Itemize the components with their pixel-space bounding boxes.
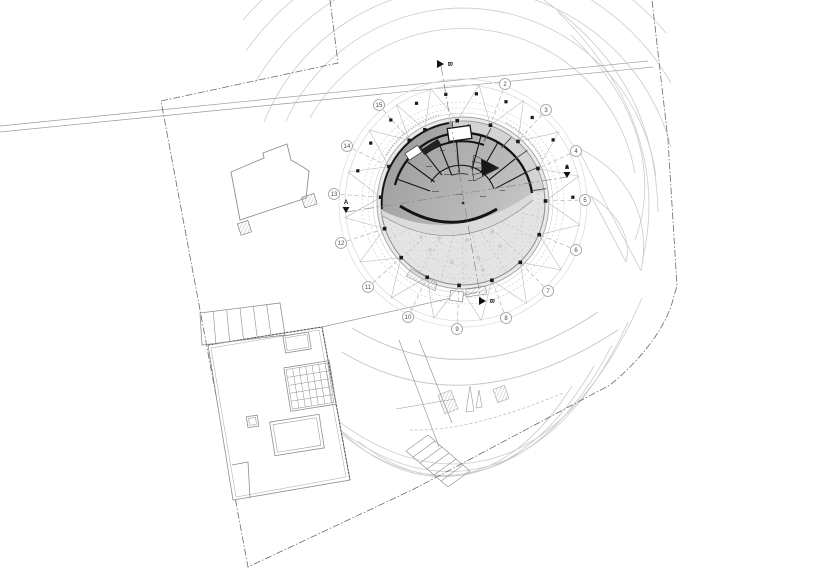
outer-column-square [415, 102, 418, 105]
grid-bubble-number: 13 [331, 192, 338, 198]
column-square [536, 167, 540, 171]
driveway-curve [352, 312, 598, 359]
column-square [537, 233, 541, 237]
column-square [379, 195, 383, 199]
column-square [489, 123, 493, 127]
column-square [423, 128, 427, 132]
driveway-curve [342, 330, 618, 385]
contour-sweep [338, 366, 594, 477]
column-square [490, 278, 494, 282]
flat-roof-outline [208, 327, 350, 500]
center-point [462, 202, 465, 205]
road-lines [0, 61, 653, 132]
grid-bubble: 14 [342, 141, 353, 152]
section-arrow-icon [437, 60, 444, 68]
grid-leader-line [541, 235, 570, 247]
column-square [519, 261, 523, 265]
grid-bubble: 11 [363, 282, 374, 293]
outer-column-square [389, 118, 392, 121]
contour-arc [544, 0, 658, 212]
grid-bubble-number: 10 [405, 315, 412, 321]
neighbor-house-outline [231, 144, 309, 220]
tree-symbol [476, 390, 482, 408]
outer-column-square [369, 141, 372, 144]
contour-sweep [305, 322, 628, 471]
road-edge [0, 67, 653, 132]
grid-bubble: 9 [452, 324, 463, 335]
column-square [457, 284, 461, 288]
grid-bubble: 12 [336, 238, 347, 249]
column-square [383, 227, 387, 231]
section-marker-a: A [564, 165, 571, 178]
section-marker-b: B [437, 60, 452, 68]
section-marker-label: B [446, 62, 452, 67]
rooftop-box [447, 125, 472, 141]
section-arrow-icon [343, 207, 350, 213]
column-square [408, 139, 412, 143]
grid-bubble: 2 [500, 79, 511, 90]
grid-bubble: 13 [329, 189, 340, 200]
section-marker-a: A [343, 200, 350, 213]
grid-bubble: 6 [571, 245, 582, 256]
contour-arc [243, 0, 645, 20]
grid-leader-line [492, 282, 503, 312]
contour-leaf [578, 148, 641, 271]
column-square [455, 119, 459, 123]
grid-leader-line [547, 200, 579, 201]
grid-leader-line [519, 115, 542, 140]
grid-bubble-number: 11 [365, 285, 372, 291]
road-edge [0, 61, 648, 126]
path-dashed-curve [410, 393, 563, 430]
outer-column-square [531, 116, 534, 119]
paving-hatch [438, 390, 458, 414]
path-edge [399, 340, 439, 447]
contour-arc [558, 12, 649, 262]
section-arrow-icon [479, 297, 486, 305]
section-marker-label: A [565, 165, 570, 171]
outer-column-square [504, 100, 507, 103]
outer-column-square [552, 138, 555, 141]
section-marker-label: A [344, 200, 349, 206]
grid-bubble: 4 [571, 146, 582, 157]
grid-bubble: 3 [541, 105, 552, 116]
outer-column-square [356, 169, 359, 172]
grid-bubble: 8 [501, 313, 512, 324]
column-square [544, 199, 548, 203]
site-plan-canvas: 23456789101112131415 BBAA [0, 0, 818, 578]
grid-bubble: 5 [580, 195, 591, 206]
grid-bubble-number: 15 [376, 103, 383, 109]
section-marker-label: B [488, 299, 494, 304]
column-square [516, 140, 520, 144]
grid-leader-line [347, 229, 383, 241]
grid-bubble: 15 [374, 100, 385, 111]
exterior-stairs [406, 435, 470, 487]
column-square [425, 276, 429, 280]
flat-roof-building [200, 292, 478, 500]
grid-bubble: 10 [403, 312, 414, 323]
edge-platform [449, 290, 463, 302]
neighbor-house [231, 144, 317, 235]
grid-bubble: 7 [543, 286, 554, 297]
column-square [399, 256, 403, 260]
tree-symbol [466, 386, 474, 412]
outer-column-square [571, 196, 574, 199]
chimney-hatch [237, 220, 251, 235]
contour-leaf [591, 196, 626, 262]
column-square [387, 165, 391, 169]
outer-column-square [475, 92, 478, 95]
contour-arc [255, 0, 671, 83]
grid-bubble-number: 12 [338, 241, 345, 247]
paving-hatch [493, 385, 509, 402]
grid-bubble-number: 14 [344, 144, 351, 150]
site-plan-drawing: 23456789101112131415 BBAA [0, 0, 818, 578]
contour-sweep [293, 298, 642, 464]
grid-leader-line [491, 90, 503, 124]
